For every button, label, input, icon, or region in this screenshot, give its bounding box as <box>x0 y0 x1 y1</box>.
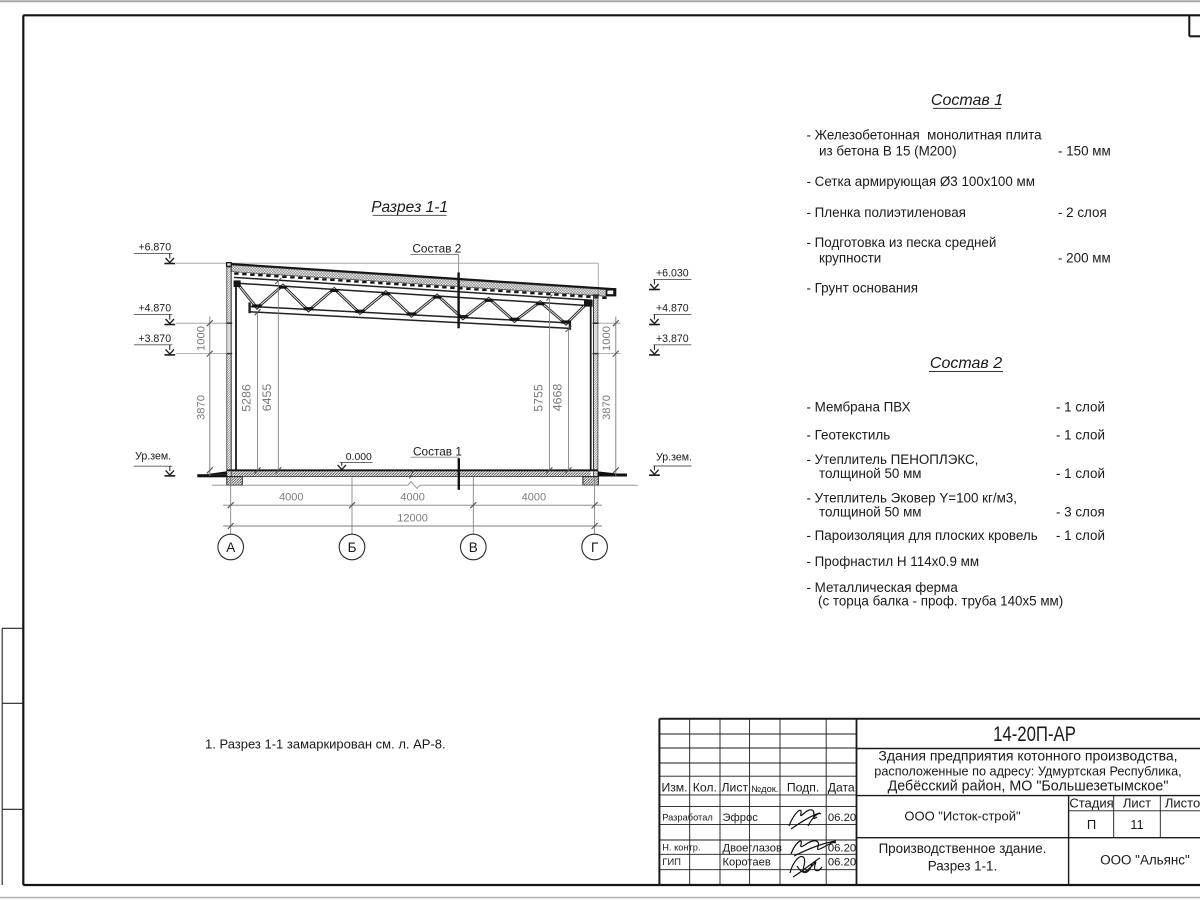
svg-text:- Грунт основания: - Грунт основания <box>807 280 918 295</box>
svg-text:Изм.: Изм. <box>661 781 687 795</box>
svg-text:+3.870: +3.870 <box>656 333 689 345</box>
svg-text:Кол.: Кол. <box>693 781 717 795</box>
svg-text:5286: 5286 <box>239 384 253 412</box>
svg-text:ООО "Альянс": ООО "Альянс" <box>1100 853 1190 868</box>
svg-text:5755: 5755 <box>531 384 545 412</box>
svg-text:0.000: 0.000 <box>346 452 372 463</box>
svg-text:из бетона В 15 (М200): из бетона В 15 (М200) <box>819 143 957 158</box>
svg-text:Производственное здание.: Производственное здание. <box>879 841 1047 856</box>
svg-text:- 1 слой: - 1 слой <box>1056 427 1105 442</box>
svg-text:- Геотекстиль: - Геотекстиль <box>807 427 891 442</box>
svg-text:Разработал: Разработал <box>662 812 713 822</box>
svg-text:1000: 1000 <box>601 326 613 351</box>
svg-text:- Пленка полиэтиленовая: - Пленка полиэтиленовая <box>807 205 966 220</box>
svg-text:3870: 3870 <box>196 395 208 420</box>
svg-text:1000: 1000 <box>196 326 208 351</box>
svg-text:В: В <box>469 540 478 555</box>
svg-text:(с торца балка - проф. труба 1: (с торца балка - проф. труба 140х5 мм) <box>818 593 1063 608</box>
svg-text:- Пароизоляция для плоских кро: - Пароизоляция для плоских кровель <box>807 528 1038 543</box>
svg-text:+4.870: +4.870 <box>656 303 689 315</box>
svg-text:06.20: 06.20 <box>828 843 856 855</box>
svg-text:Дебёсский район, МО "Большезет: Дебёсский район, МО "Большезетымское" <box>888 779 1169 795</box>
svg-text:Лист: Лист <box>722 781 749 795</box>
svg-text:Состав 1: Состав 1 <box>413 444 462 458</box>
svg-text:14-20П-АР: 14-20П-АР <box>993 723 1076 746</box>
svg-text:- 1 слой: - 1 слой <box>1056 466 1105 481</box>
svg-text:4000: 4000 <box>522 492 546 504</box>
svg-text:- Утеплитель ПЕНОПЛЭКС,: - Утеплитель ПЕНОПЛЭКС, <box>807 452 979 467</box>
svg-text:ГИП: ГИП <box>662 857 681 868</box>
svg-text:Стадия: Стадия <box>1069 795 1113 810</box>
svg-text:12000: 12000 <box>397 512 428 524</box>
svg-text:+3.870: +3.870 <box>138 333 171 345</box>
svg-text:+4.870: +4.870 <box>138 303 171 315</box>
svg-text:Эфрос: Эфрос <box>723 812 759 824</box>
svg-text:6455: 6455 <box>260 384 274 412</box>
svg-text:Здания предприятия котонного п: Здания предприятия котонного производств… <box>878 748 1177 764</box>
svg-text:Состав 1: Состав 1 <box>931 92 1003 109</box>
svg-text:Состав 2: Состав 2 <box>930 355 1002 372</box>
svg-text:Коротаев: Коротаев <box>723 857 771 869</box>
svg-text:- Железобетонная монолитная п: - Железобетонная монолитная плита <box>807 127 1043 142</box>
svg-text:- 1 слой: - 1 слой <box>1056 399 1105 414</box>
svg-text:- Профнастил Н 114х0.9 мм: - Профнастил Н 114х0.9 мм <box>807 554 980 569</box>
svg-text:Разрез 1-1: Разрез 1-1 <box>371 199 448 216</box>
svg-text:- Утеплитель Эковер Y=100 кг/м: - Утеплитель Эковер Y=100 кг/м3, <box>807 491 1017 506</box>
svg-text:Состав 2: Состав 2 <box>412 241 461 255</box>
svg-text:Лист: Лист <box>1123 795 1151 810</box>
svg-text:№док.: №док. <box>751 784 778 794</box>
svg-text:Б: Б <box>348 540 357 555</box>
svg-text:толщиной 50 мм: толщиной 50 мм <box>819 466 922 481</box>
svg-text:крупности: крупности <box>819 251 881 266</box>
svg-text:- 3 слоя: - 3 слоя <box>1056 504 1105 519</box>
svg-text:Подп.: Подп. <box>787 781 819 795</box>
svg-text:06.20: 06.20 <box>828 812 856 824</box>
svg-text:Г: Г <box>591 540 599 555</box>
svg-text:ООО "Исток-строй": ООО "Исток-строй" <box>904 808 1021 823</box>
svg-text:- Сетка армирующая Ø3 100х100: - Сетка армирующая Ø3 100х100 мм <box>807 174 1035 189</box>
svg-text:- 1 слой: - 1 слой <box>1056 528 1105 543</box>
svg-text:06.20: 06.20 <box>828 857 856 869</box>
svg-text:П: П <box>1087 817 1096 832</box>
svg-text:Н. контр.: Н. контр. <box>662 842 700 852</box>
svg-text:толщиной 50 мм: толщиной 50 мм <box>819 504 922 519</box>
svg-text:- 200 мм: - 200 мм <box>1058 251 1111 266</box>
svg-text:11: 11 <box>1130 817 1144 832</box>
svg-text:1. Разрез 1-1 замаркирован см.: 1. Разрез 1-1 замаркирован см. л. АР-8. <box>205 736 446 751</box>
svg-text:Дата: Дата <box>828 781 855 795</box>
svg-text:Разрез 1-1.: Разрез 1-1. <box>928 858 997 873</box>
svg-text:- Подготовка из песка средней: - Подготовка из песка средней <box>807 235 997 250</box>
svg-text:Двоеглазов: Двоеглазов <box>723 842 783 854</box>
svg-text:Ур.зем.: Ур.зем. <box>656 452 692 464</box>
svg-text:- 2 слоя: - 2 слоя <box>1058 205 1107 220</box>
svg-text:Ур.зем.: Ур.зем. <box>135 451 171 463</box>
svg-text:- Мембрана ПВХ: - Мембрана ПВХ <box>807 399 911 414</box>
svg-text:4668: 4668 <box>551 384 565 412</box>
svg-text:3870: 3870 <box>601 395 613 420</box>
svg-text:4000: 4000 <box>279 492 303 504</box>
svg-text:+6.030: +6.030 <box>656 268 689 280</box>
svg-text:+6.870: +6.870 <box>138 242 171 254</box>
svg-text:А: А <box>226 540 235 555</box>
svg-text:расположенные по адресу: Удмур: расположенные по адресу: Удмуртская Респ… <box>874 765 1181 779</box>
svg-text:4000: 4000 <box>400 492 424 504</box>
svg-text:- 150 мм: - 150 мм <box>1058 143 1111 158</box>
svg-text:Листов: Листов <box>1165 795 1200 810</box>
